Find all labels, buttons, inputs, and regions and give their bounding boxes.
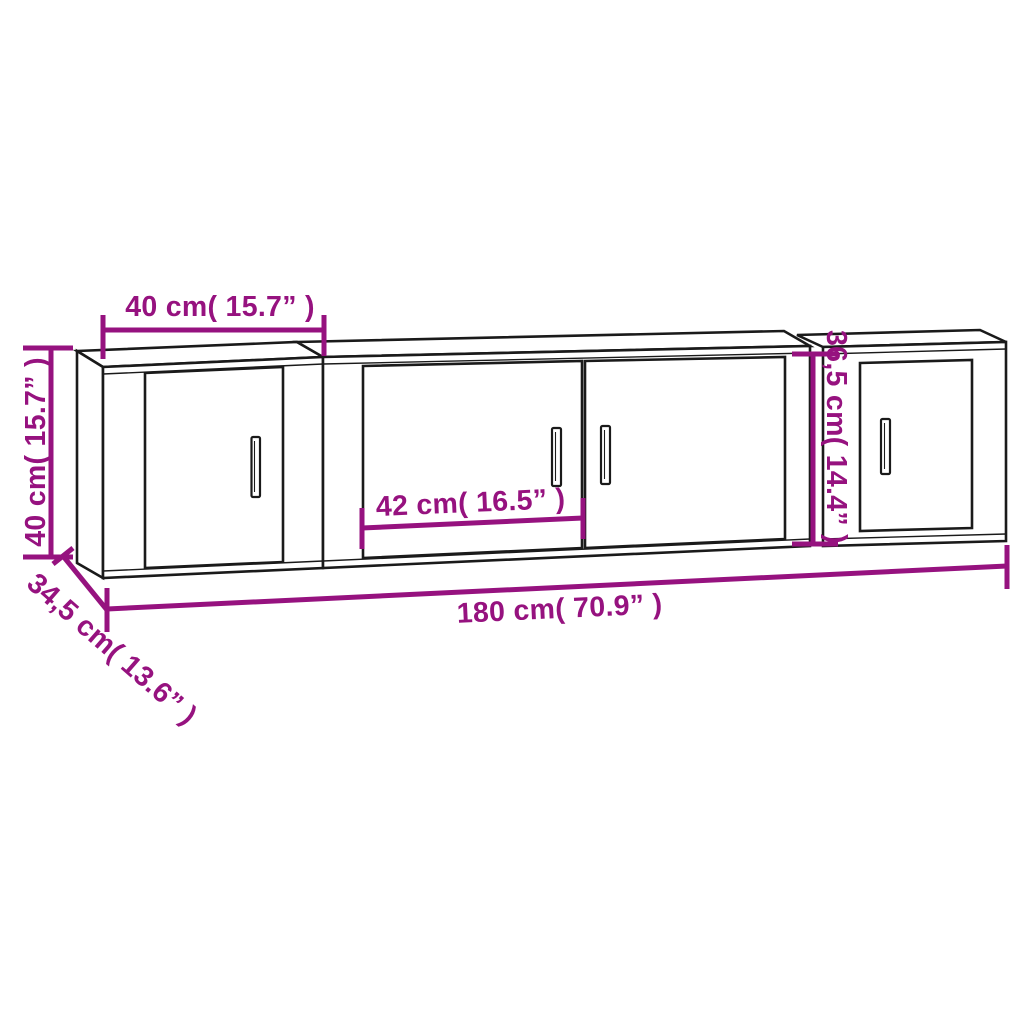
middle-cabinet: [297, 331, 810, 568]
dimension-label-left-cabinet-width: 40 cm( 15.7” ): [125, 291, 315, 323]
dimension-label-cabinet-depth: 34,5 cm( 13.6” ): [21, 567, 203, 731]
door-handle: [252, 437, 261, 497]
middle-cabinet-right-door-handle: [601, 426, 610, 484]
left-cabinet-front-face: [103, 357, 323, 578]
dimension-diagram-canvas: 40 cm( 15.7” ) 40 cm( 15.7” ) 42 cm( 16.…: [0, 0, 1024, 1024]
middle-cabinet-left-door-handle: [552, 428, 561, 486]
dimension-label-left-cabinet-height: 40 cm( 15.7” ): [20, 357, 52, 547]
cabinet-set-dimension-drawing: 40 cm( 15.7” ) 40 cm( 15.7” ) 42 cm( 16.…: [0, 0, 1024, 1024]
door-handle: [881, 419, 890, 474]
left-cabinet-door-handle: [252, 437, 261, 497]
left-cabinet: [77, 342, 323, 578]
dimension-label-total-width: 180 cm( 70.9” ): [456, 588, 663, 630]
dimension-label-right-cabinet-height: 36,5 cm( 14.4” ): [820, 330, 852, 544]
right-cabinet-door-handle: [881, 419, 890, 474]
door-handle: [601, 426, 610, 484]
left-cabinet-side-face: [77, 351, 103, 578]
door-handle: [552, 428, 561, 486]
dimension-left-height: 40 cm( 15.7” ): [20, 348, 73, 557]
middle-cabinet-front-face: [323, 346, 810, 568]
